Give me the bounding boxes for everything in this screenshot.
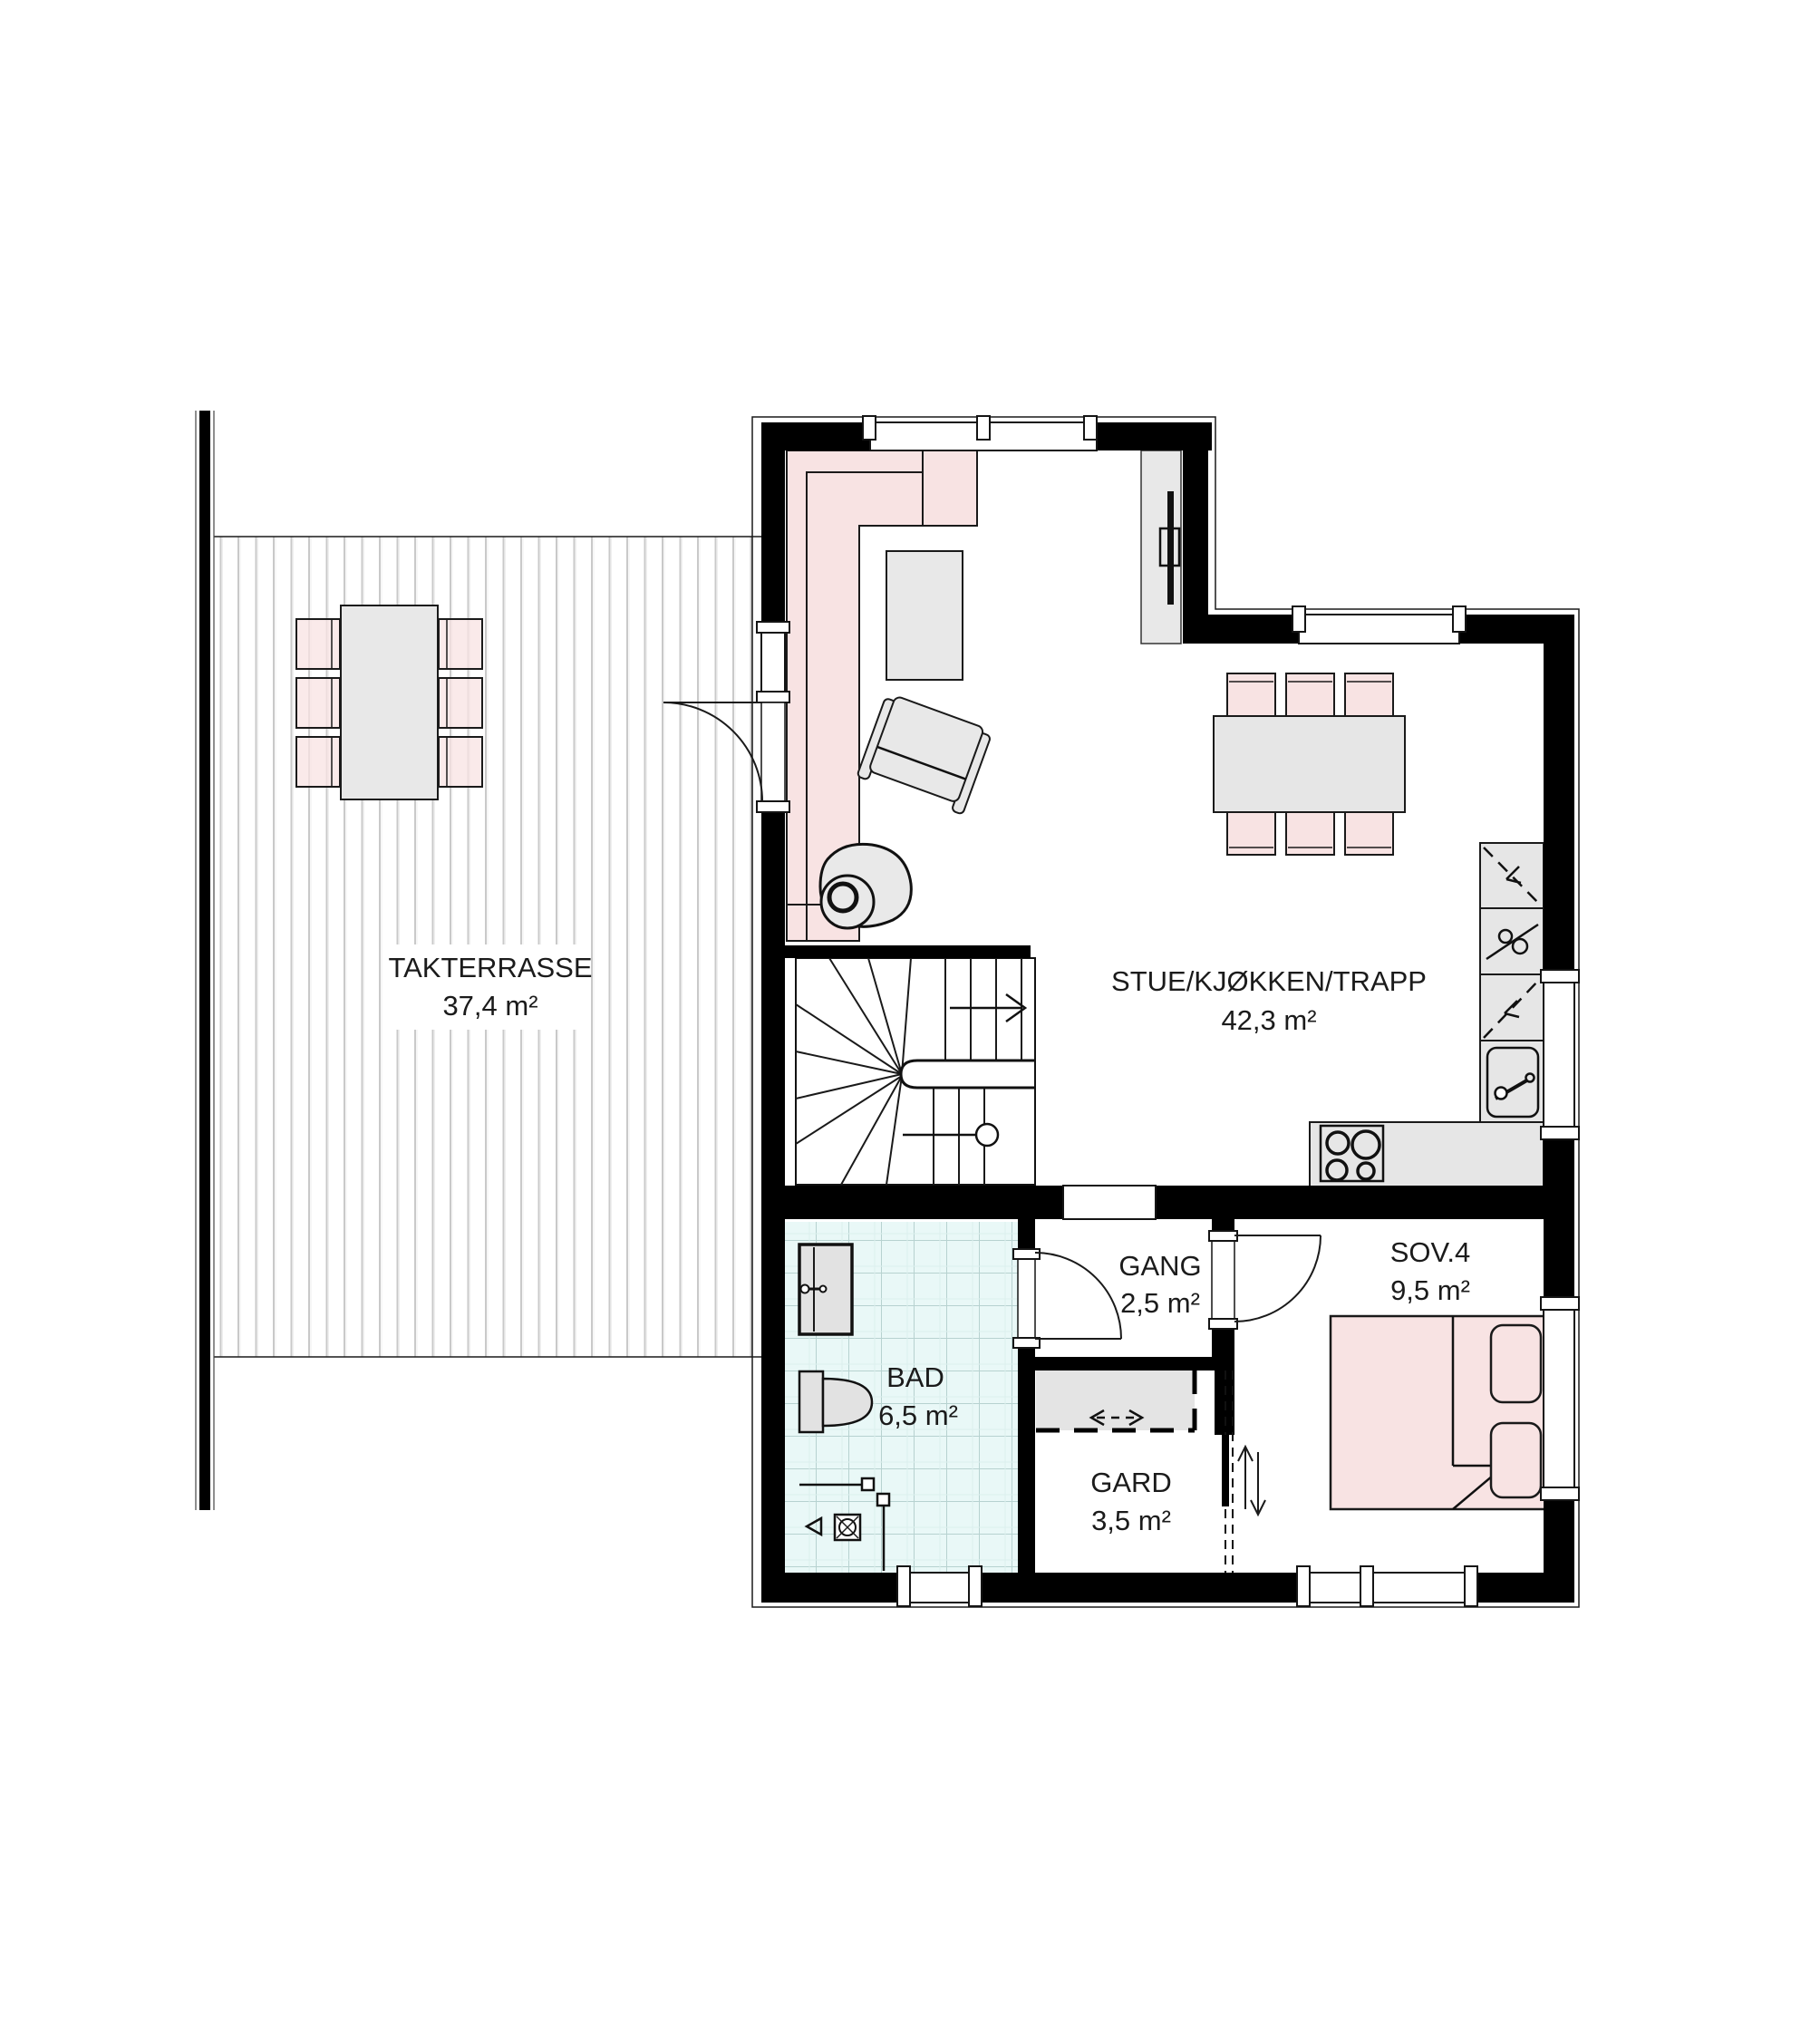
window-kitchen-east	[1541, 970, 1579, 1139]
window-mullion	[757, 622, 789, 633]
wardrobe-closet	[1036, 1371, 1195, 1430]
window-bedroom-south	[1297, 1566, 1477, 1606]
terrace-parapet-wall	[199, 411, 210, 1510]
window-mullion	[1453, 606, 1466, 632]
door-post	[757, 801, 789, 812]
terrace: TAKTERRASSE 37,4 m²	[196, 411, 761, 1510]
dining-chair	[1227, 812, 1275, 855]
window-left-sidelight	[757, 622, 789, 702]
dining-chair	[1286, 812, 1334, 855]
window-mullion	[1541, 1487, 1579, 1500]
hanging-chair	[820, 844, 911, 928]
window-mullion	[977, 416, 990, 440]
window-mullion	[1465, 1566, 1477, 1606]
stove-cooktop	[1321, 1126, 1383, 1181]
terrace-chair	[439, 678, 482, 728]
window-mullion	[1084, 416, 1097, 440]
faucet-knob-icon	[820, 1286, 827, 1293]
shower-screen-post	[877, 1494, 889, 1506]
window-mullion	[969, 1566, 982, 1606]
wall-stair-stub	[785, 945, 1031, 958]
kitchen-sink	[1487, 1048, 1538, 1117]
tv-screen	[1167, 491, 1174, 605]
window-bedroom-east	[1541, 1297, 1579, 1500]
terrace-chair	[296, 619, 340, 669]
stair-handrail	[901, 1061, 1034, 1088]
window-mullion	[863, 416, 876, 440]
wall-left	[761, 422, 785, 1603]
door-post	[1013, 1249, 1040, 1259]
room-label-sov4: SOV.4	[1390, 1236, 1470, 1268]
door-post	[1209, 1231, 1237, 1241]
window-mullion	[1541, 1127, 1579, 1139]
room-label-takterrasse: TAKTERRASSE	[388, 952, 592, 983]
dining-chair	[1227, 673, 1275, 716]
stair-walkline-start	[976, 1124, 998, 1146]
terrace-chair	[439, 619, 482, 669]
coffee-table	[886, 551, 963, 680]
terrace-chair	[296, 737, 340, 787]
closet-body	[1036, 1371, 1195, 1430]
window-mullion	[1541, 1297, 1579, 1310]
room-area-takterrasse: 37,4 m²	[442, 990, 537, 1022]
floor-plan-page: TAKTERRASSE 37,4 m²	[0, 0, 1820, 2034]
wall-gang-gard	[1035, 1357, 1222, 1371]
terrace-chair	[296, 678, 340, 728]
door-post	[1209, 1319, 1237, 1329]
pillow	[1491, 1325, 1541, 1402]
room-area-gard: 3,5 m²	[1091, 1505, 1171, 1536]
sliding-door-leaf	[1222, 1435, 1229, 1506]
window-mullion	[897, 1566, 910, 1606]
terrace-table	[341, 605, 438, 799]
room-area-stue: 42,3 m²	[1221, 1004, 1316, 1036]
terrace-chair	[439, 737, 482, 787]
dining-chair	[1345, 812, 1393, 855]
room-label-gard: GARD	[1090, 1467, 1172, 1498]
dining-chair	[1286, 673, 1334, 716]
dining-table	[1214, 716, 1405, 812]
dining-set	[1214, 673, 1405, 855]
faucet-base-icon	[801, 1285, 809, 1293]
wall-bad-gard	[1018, 1357, 1035, 1573]
room-area-sov4: 9,5 m²	[1390, 1274, 1470, 1306]
faucet-base-icon	[1496, 1088, 1507, 1099]
room-label-stue: STUE/KJØKKEN/TRAPP	[1111, 965, 1427, 997]
wall-upper-right	[1183, 422, 1208, 644]
hallway-opening	[1063, 1186, 1156, 1219]
room-area-gang: 2,5 m²	[1120, 1287, 1200, 1319]
bedroom-furniture	[1331, 1316, 1545, 1509]
window-mullion	[1360, 1566, 1373, 1606]
floor-plan-canvas: TAKTERRASSE 37,4 m²	[0, 0, 1820, 2034]
toilet-tank	[799, 1371, 823, 1432]
washbasin	[799, 1245, 852, 1334]
shower-screen-post	[862, 1478, 874, 1490]
window-bathroom-south	[897, 1566, 982, 1606]
room-label-gang: GANG	[1118, 1250, 1201, 1282]
faucet-knob-icon	[1526, 1074, 1534, 1082]
window-mullion	[1297, 1566, 1310, 1606]
room-label-bad: BAD	[886, 1361, 944, 1393]
wall-separating	[761, 1186, 1574, 1219]
window-mullion	[1541, 970, 1579, 983]
dining-chair	[1345, 673, 1393, 716]
terrace-table-group	[296, 605, 482, 799]
window-mullion	[757, 692, 789, 702]
staircase	[796, 958, 1035, 1185]
pillow	[1491, 1423, 1541, 1497]
window-mullion	[1292, 606, 1305, 632]
room-area-bad: 6,5 m²	[878, 1400, 958, 1431]
